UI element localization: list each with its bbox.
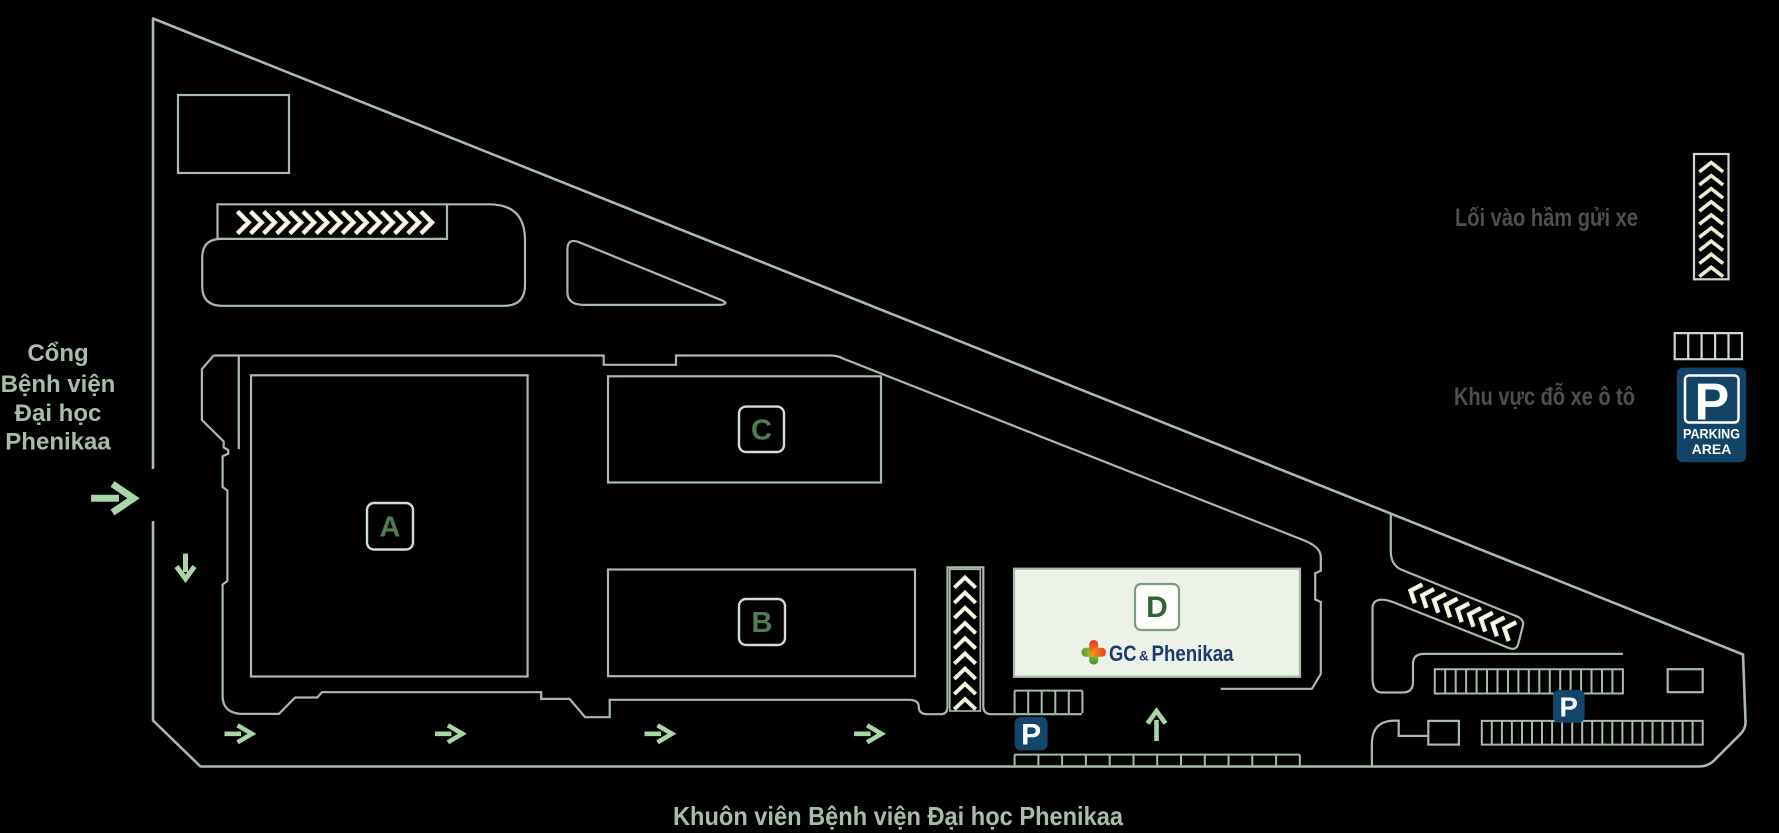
svg-text:&: &: [1139, 649, 1149, 664]
svg-text:AREA: AREA: [1692, 441, 1732, 457]
svg-text:P: P: [1021, 719, 1041, 752]
svg-text:GC: GC: [1109, 641, 1137, 666]
svg-text:Lối vào hầm gửi xe: Lối vào hầm gửi xe: [1455, 204, 1638, 232]
svg-text:P: P: [1694, 374, 1729, 432]
svg-text:Bệnh viện: Bệnh viện: [1, 371, 116, 398]
svg-text:Phenikaa: Phenikaa: [1152, 641, 1235, 666]
svg-text:A: A: [380, 512, 401, 544]
svg-text:Khuôn viên Bệnh viện Đại học P: Khuôn viên Bệnh viện Đại học Phenikaa: [673, 801, 1123, 831]
svg-text:Phenikaa: Phenikaa: [5, 429, 111, 456]
svg-text:B: B: [752, 607, 773, 639]
svg-text:Khu vực đỗ xe ô tô: Khu vực đỗ xe ô tô: [1454, 381, 1635, 411]
svg-text:P: P: [1560, 691, 1578, 722]
svg-text:PARKING: PARKING: [1683, 426, 1740, 442]
svg-text:D: D: [1146, 591, 1168, 624]
svg-text:C: C: [751, 415, 772, 447]
svg-text:Đại học: Đại học: [15, 400, 102, 427]
svg-text:Cổng: Cổng: [27, 340, 88, 367]
